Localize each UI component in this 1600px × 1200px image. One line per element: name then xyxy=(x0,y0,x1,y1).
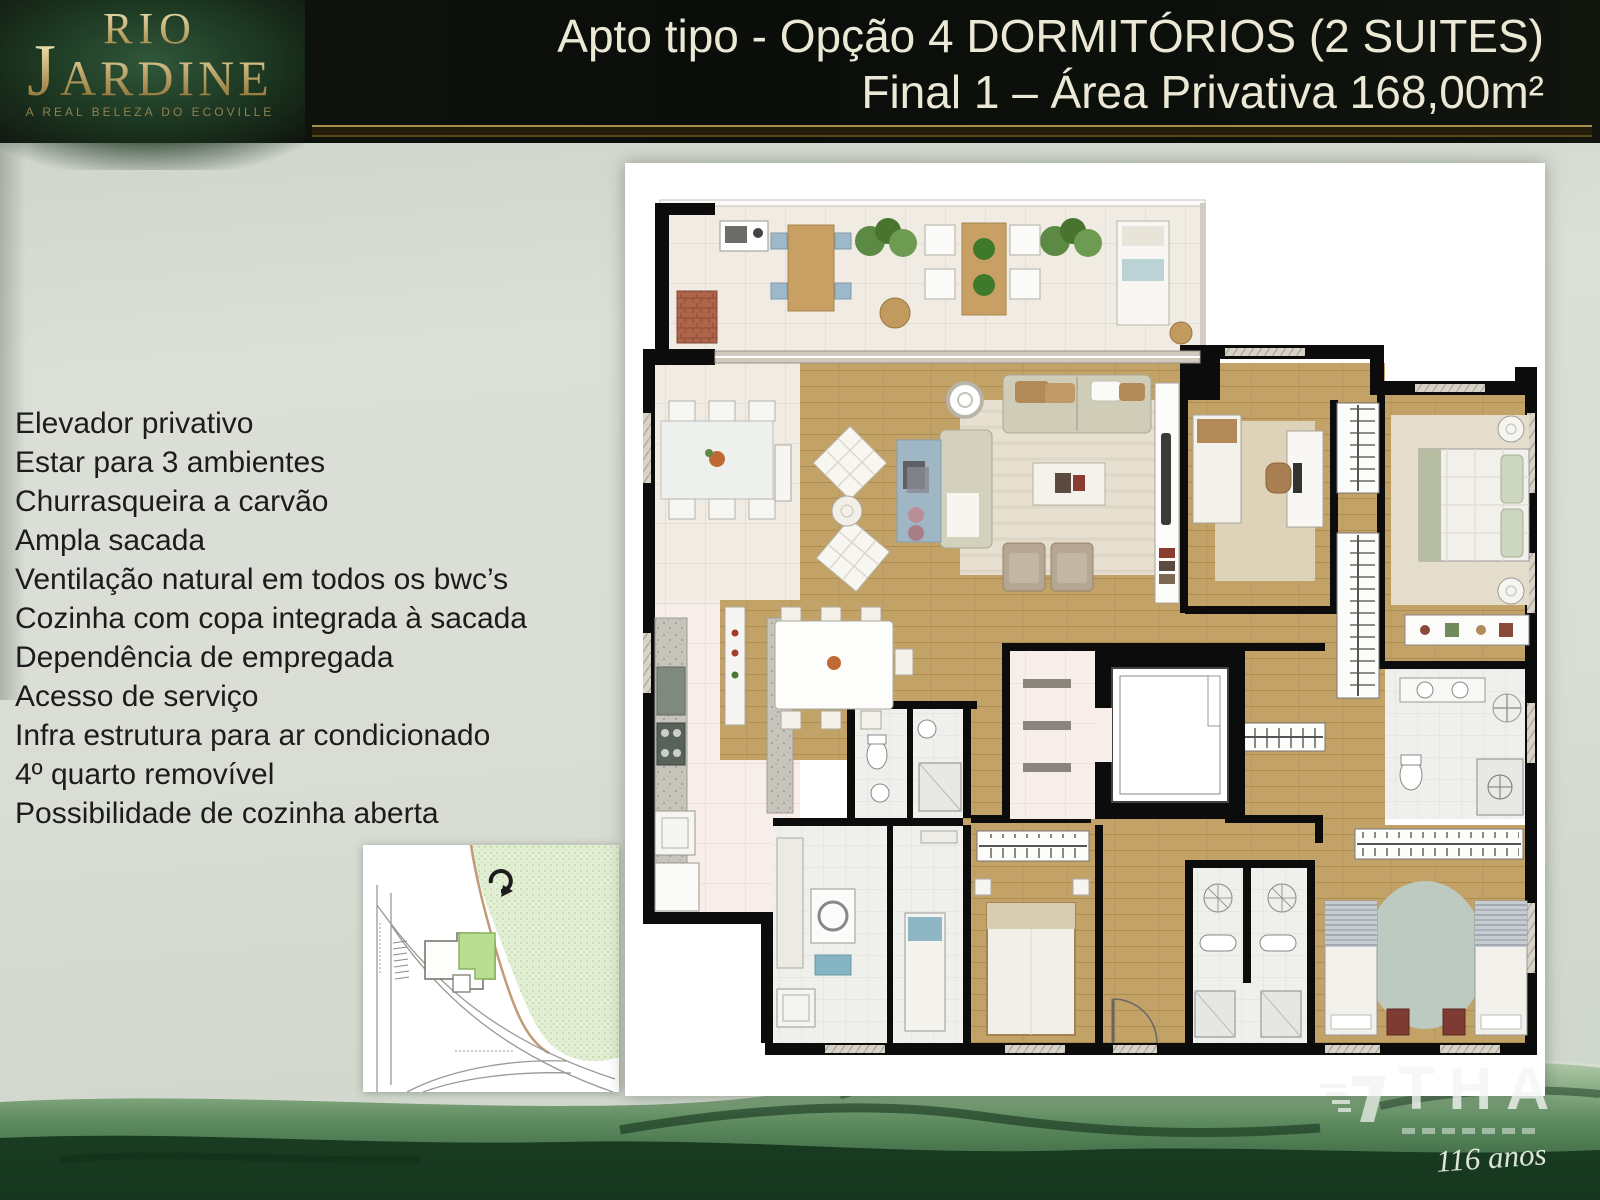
feature-item: Possibilidade de cozinha aberta xyxy=(15,794,527,833)
terrace-table2 xyxy=(962,223,1006,315)
logo-tagline: A REAL BELEZA DO ECOVILLE xyxy=(0,105,300,119)
closet-rack xyxy=(977,831,1089,861)
feature-item: Elevador privativo xyxy=(15,404,527,443)
private-lobby xyxy=(1010,651,1095,819)
closet-rack xyxy=(1337,533,1379,698)
feature-item: 4º quarto removível xyxy=(15,755,527,794)
dining-furniture xyxy=(661,401,791,519)
vanity xyxy=(1400,678,1485,702)
bedroom2-furniture xyxy=(975,879,1089,1035)
title-line2: Final 1 – Área Privativa 168,00m² xyxy=(557,64,1544,120)
feature-item: Acesso de serviço xyxy=(15,677,527,716)
sink xyxy=(1260,935,1296,951)
sink xyxy=(1200,935,1236,951)
desk xyxy=(1287,431,1323,527)
feature-list: Elevador privativo Estar para 3 ambiente… xyxy=(15,404,527,833)
fridge xyxy=(655,863,699,911)
round-rug xyxy=(1365,881,1485,1029)
feature-item: Infra estrutura para ar condicionado xyxy=(15,716,527,755)
cooktop xyxy=(657,723,685,765)
elevator-cab xyxy=(1112,668,1228,802)
terrace-table xyxy=(788,225,834,311)
watermark-anniversary: 116 anos xyxy=(1435,1136,1548,1180)
floor-plan-image xyxy=(625,163,1545,1096)
site-plan-panel xyxy=(363,845,619,1092)
watermark-smallprint xyxy=(1402,1128,1562,1134)
tv xyxy=(1161,433,1171,525)
balcony-railing xyxy=(660,200,1205,206)
page-title: Apto tipo - Opção 4 DORMITÓRIOS (2 SUITE… xyxy=(557,8,1544,120)
title-line1: Apto tipo - Opção 4 DORMITÓRIOS (2 SUITE… xyxy=(557,8,1544,64)
closet-rack xyxy=(1337,403,1379,493)
feature-item: Ampla sacada xyxy=(15,521,527,560)
bedroom3-furniture xyxy=(1325,881,1527,1035)
builder-watermark: THA 116 anos xyxy=(1318,1052,1588,1182)
tha-logo-icon xyxy=(1318,1070,1390,1128)
feature-item: Dependência de empregada xyxy=(15,638,527,677)
slide: RIO JARDINE A REAL BELEZA DO ECOVILLE Ap… xyxy=(0,0,1600,1200)
terrace-round-table xyxy=(880,298,910,328)
charcoal-grill xyxy=(677,291,717,343)
nightstand xyxy=(1387,1009,1409,1035)
desk-chair xyxy=(1266,463,1291,493)
site-plan-image xyxy=(363,845,619,1092)
feature-item: Churrasqueira a carvão xyxy=(15,482,527,521)
closet-rack xyxy=(1355,829,1523,859)
logo-line2: JARDINE xyxy=(0,46,300,103)
elevator-door xyxy=(1095,708,1112,762)
brand-logo: RIO JARDINE A REAL BELEZA DO ECOVILLE xyxy=(0,6,300,119)
building-annex xyxy=(453,975,470,992)
feature-item: Estar para 3 ambientes xyxy=(15,443,527,482)
feature-item: Cozinha com copa integrada à sacada xyxy=(15,599,527,638)
feature-item: Ventilação natural em todos os bwc’s xyxy=(15,560,527,599)
watermark-company: THA xyxy=(1398,1054,1563,1123)
gold-divider-line xyxy=(312,125,1592,137)
elevator-core xyxy=(1010,651,1245,819)
floor-plan-panel xyxy=(625,163,1545,1096)
nightstand xyxy=(1443,1009,1465,1035)
closet-rack xyxy=(1235,723,1325,751)
